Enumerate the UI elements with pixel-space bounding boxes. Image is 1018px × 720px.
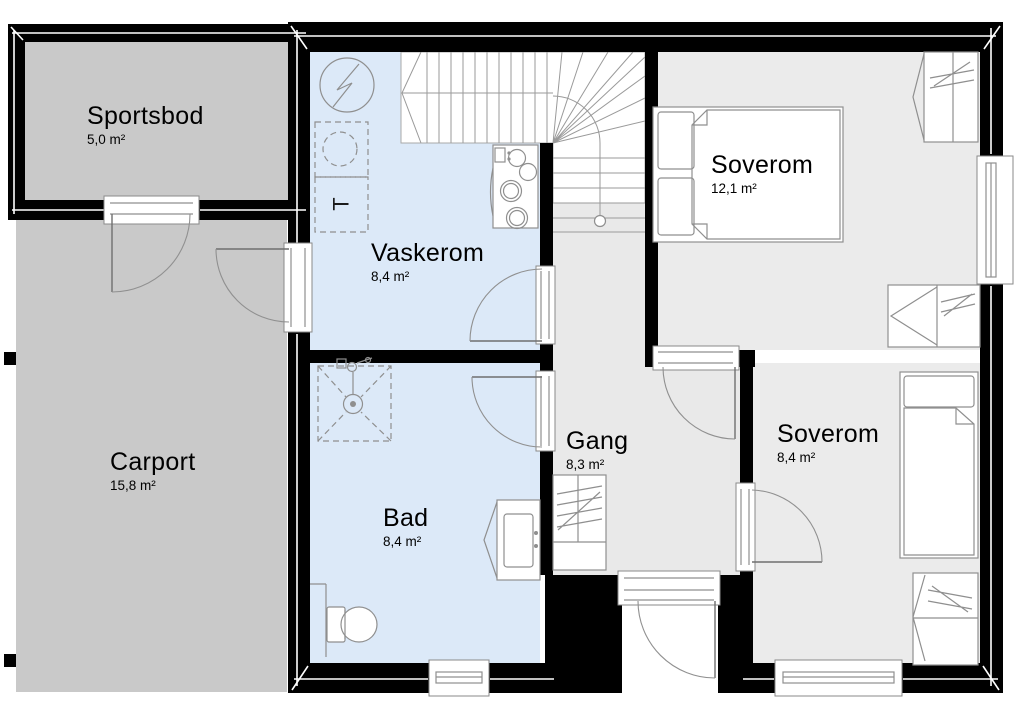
wall-soverom2-west-upper (740, 367, 753, 485)
dryer-symbol: T (329, 197, 354, 210)
wall-wet-east-upper (540, 143, 553, 268)
wall-south-soverom2-right (900, 663, 1003, 693)
floor-sportsbod (25, 42, 288, 200)
wall-south-bad-left (288, 663, 432, 693)
door-entrance (618, 571, 720, 678)
wall-west-lower (288, 330, 310, 693)
double-bed-icon (653, 107, 843, 242)
gang-closet-icon (553, 475, 606, 570)
wall-entry-stub-right (718, 575, 753, 693)
floor-plan-drawing: T (0, 0, 1018, 720)
wall-sportsbod-left (8, 24, 25, 220)
wall-soverom1-south-right (737, 350, 755, 367)
single-bed-icon (900, 372, 978, 558)
laundry-sink-icon (491, 145, 539, 229)
stair-newel-post (595, 216, 606, 227)
wall-entry-stub-left (545, 575, 622, 693)
carport-post-upper (4, 352, 16, 365)
wall-main-top (288, 22, 1003, 52)
wardrobe-soverom1-bottom-icon (888, 285, 980, 347)
floor-carport (16, 220, 287, 692)
carport-post-lower (4, 654, 16, 667)
window-soverom2-south (775, 660, 902, 696)
window-soverom1-east (977, 156, 1013, 284)
wardrobe-soverom2-icon (913, 573, 978, 665)
window-bad-south (429, 660, 489, 696)
wall-wet-east-lower (540, 449, 553, 575)
wall-vaskerom-bad-divider (288, 350, 553, 363)
floor-plan: T (0, 0, 1018, 720)
wall-west-upper (288, 22, 310, 247)
